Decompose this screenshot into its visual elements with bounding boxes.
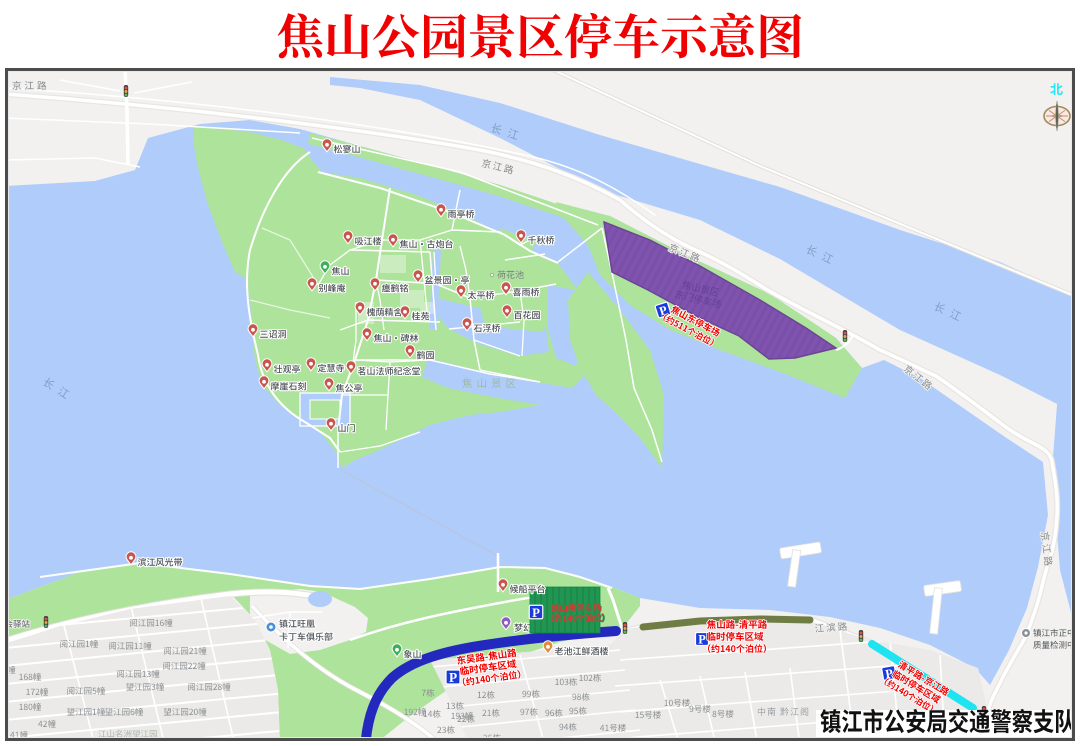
svg-text:P: P [532,606,540,620]
svg-text:P: P [698,633,706,647]
svg-text:P: P [449,670,457,685]
